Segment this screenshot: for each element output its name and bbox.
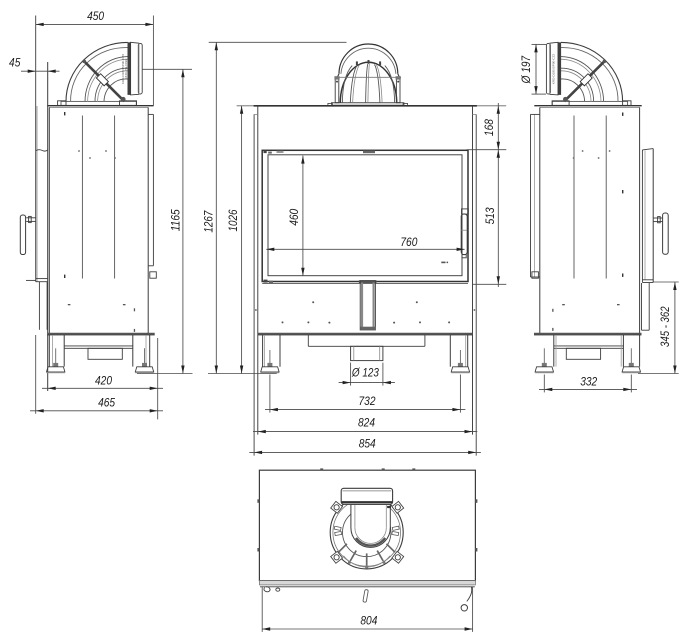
svg-text:465: 465 xyxy=(98,396,115,410)
svg-text:732: 732 xyxy=(359,394,376,408)
svg-text:824: 824 xyxy=(358,415,375,429)
svg-text:1267: 1267 xyxy=(201,210,215,233)
svg-text:332: 332 xyxy=(580,374,597,388)
svg-text:1165: 1165 xyxy=(168,209,182,231)
svg-text:804: 804 xyxy=(360,614,377,628)
svg-text:Ø 197: Ø 197 xyxy=(519,55,533,84)
svg-text:Ø 123: Ø 123 xyxy=(351,366,379,380)
svg-text:1026: 1026 xyxy=(226,209,240,231)
svg-text:0446-PN-0099: 0446-PN-0099 xyxy=(124,59,128,79)
svg-text:168: 168 xyxy=(482,119,496,136)
svg-text:420: 420 xyxy=(95,374,112,388)
svg-text:513: 513 xyxy=(483,207,497,224)
svg-text:345 - 362: 345 - 362 xyxy=(658,306,672,347)
svg-text:450: 450 xyxy=(87,9,104,23)
svg-text:760: 760 xyxy=(400,235,417,249)
svg-text:45: 45 xyxy=(9,55,20,69)
svg-text:KRD-D180/SP90-CZ2: KRD-D180/SP90-CZ2 xyxy=(552,54,556,85)
svg-text:460: 460 xyxy=(287,209,301,226)
svg-text:854: 854 xyxy=(359,437,376,451)
